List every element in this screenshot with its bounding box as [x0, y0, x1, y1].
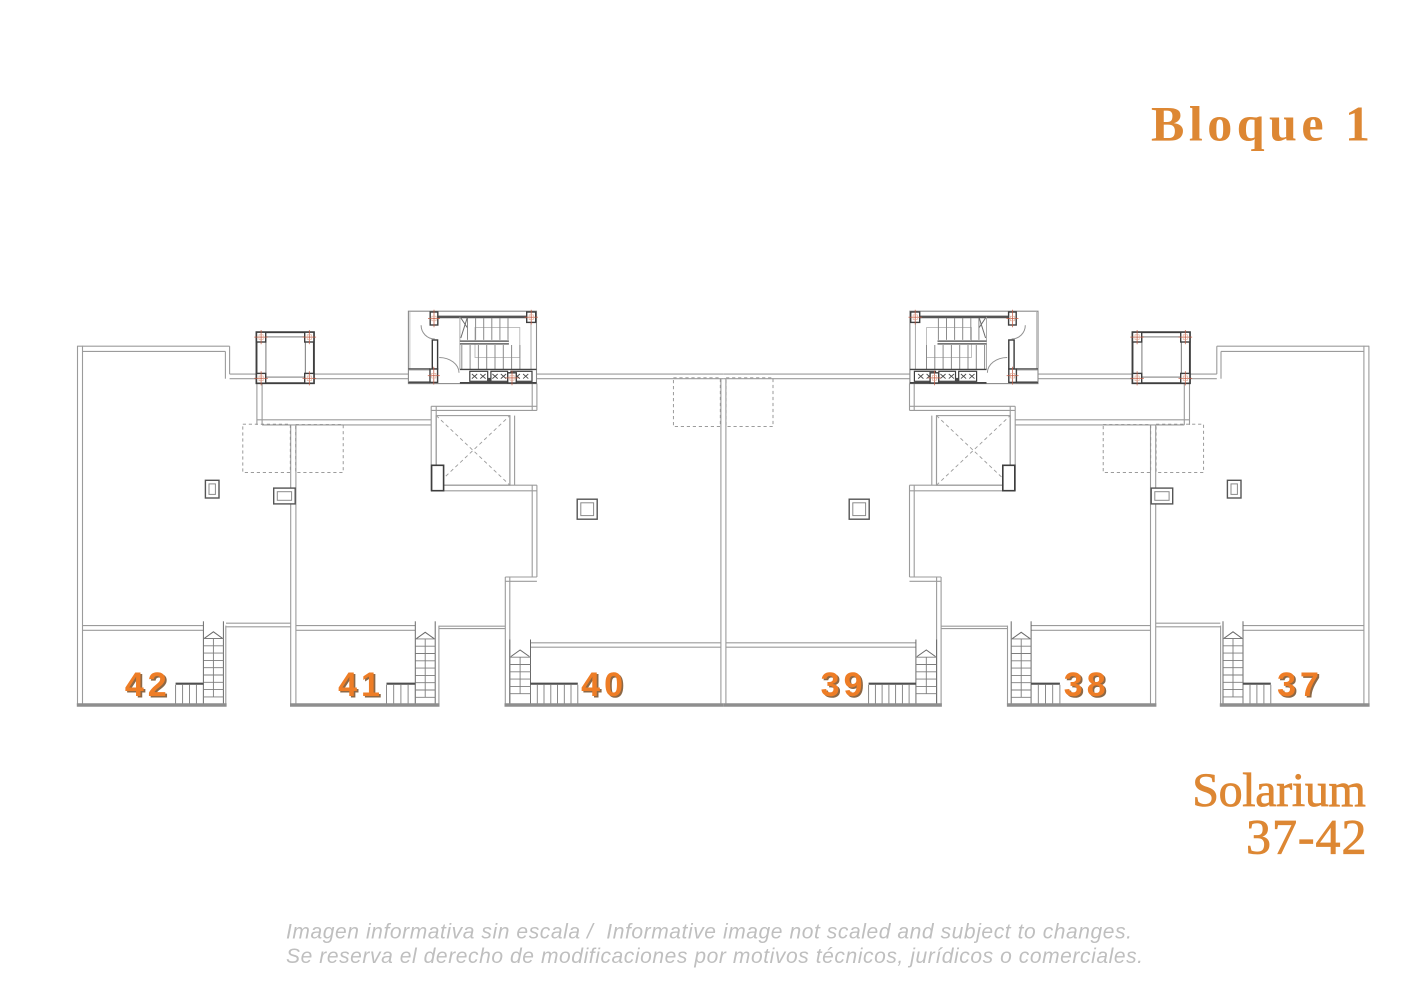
svg-text:37-42: 37-42 — [1246, 809, 1367, 865]
svg-text:Imagen informativa sin escala: Imagen informativa sin escala / Informat… — [286, 920, 1133, 943]
svg-text:41: 41 — [338, 666, 384, 704]
svg-text:42: 42 — [125, 666, 171, 704]
svg-text:40: 40 — [581, 666, 627, 704]
svg-text:39: 39 — [821, 666, 867, 704]
svg-text:Bloque 1: Bloque 1 — [1151, 96, 1370, 152]
svg-text:37: 37 — [1277, 666, 1323, 704]
svg-text:Se reserva el derecho de modif: Se reserva el derecho de modificaciones … — [286, 945, 1144, 968]
svg-text:38: 38 — [1064, 666, 1110, 704]
